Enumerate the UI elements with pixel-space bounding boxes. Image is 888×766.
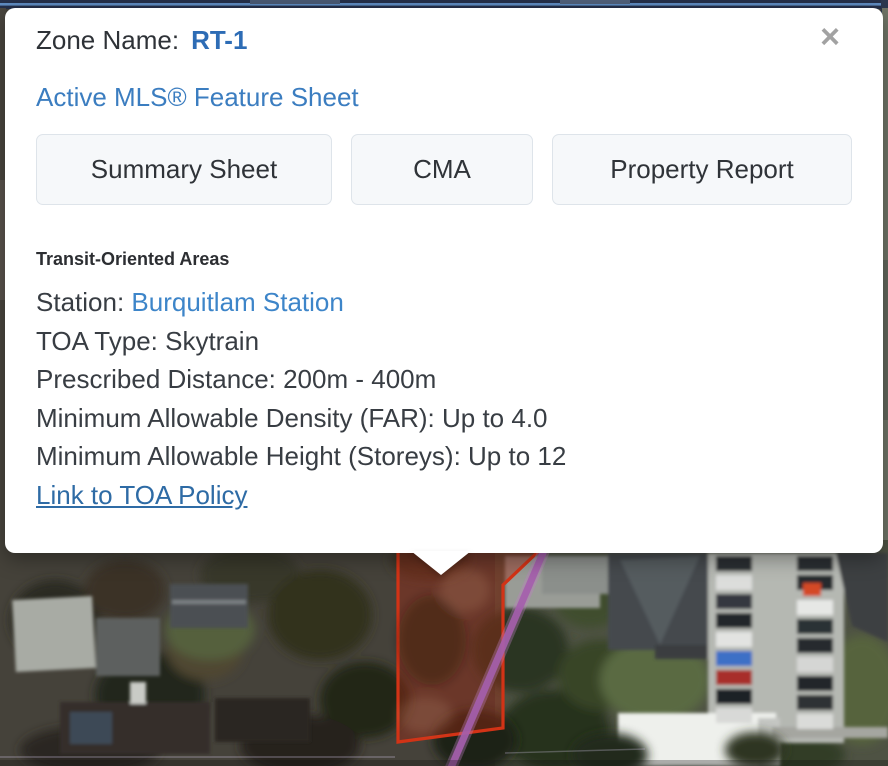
station-label: Station: bbox=[36, 287, 124, 317]
toa-heading: Transit-Oriented Areas bbox=[36, 249, 852, 270]
min-density-line: Minimum Allowable Density (FAR): Up to 4… bbox=[36, 399, 852, 438]
toa-details: Station: Burquitlam Station TOA Type: Sk… bbox=[36, 283, 852, 515]
popup-header: Zone Name:RT-1 × bbox=[36, 22, 852, 58]
feature-sheet-link[interactable]: Active MLS® Feature Sheet bbox=[36, 82, 359, 113]
map-info-popup: Zone Name:RT-1 × Active MLS® Feature She… bbox=[5, 8, 883, 553]
prescribed-distance-line: Prescribed Distance: 200m - 400m bbox=[36, 360, 852, 399]
zone-name: Zone Name:RT-1 bbox=[36, 22, 247, 58]
property-report-button[interactable]: Property Report bbox=[552, 134, 852, 205]
summary-sheet-button[interactable]: Summary Sheet bbox=[36, 134, 332, 205]
toa-policy-link[interactable]: Link to TOA Policy bbox=[36, 476, 247, 515]
min-height-line: Minimum Allowable Height (Storeys): Up t… bbox=[36, 437, 852, 476]
toa-type-line: TOA Type: Skytrain bbox=[36, 322, 852, 361]
close-icon[interactable]: × bbox=[820, 22, 840, 52]
station-link[interactable]: Burquitlam Station bbox=[131, 287, 343, 317]
cma-button[interactable]: CMA bbox=[351, 134, 533, 205]
popup-pointer-arrow bbox=[411, 551, 471, 575]
zone-name-value: RT-1 bbox=[191, 25, 247, 55]
zone-name-label: Zone Name: bbox=[36, 25, 179, 55]
station-line: Station: Burquitlam Station bbox=[36, 283, 852, 322]
report-buttons: Summary Sheet CMA Property Report bbox=[36, 134, 852, 205]
